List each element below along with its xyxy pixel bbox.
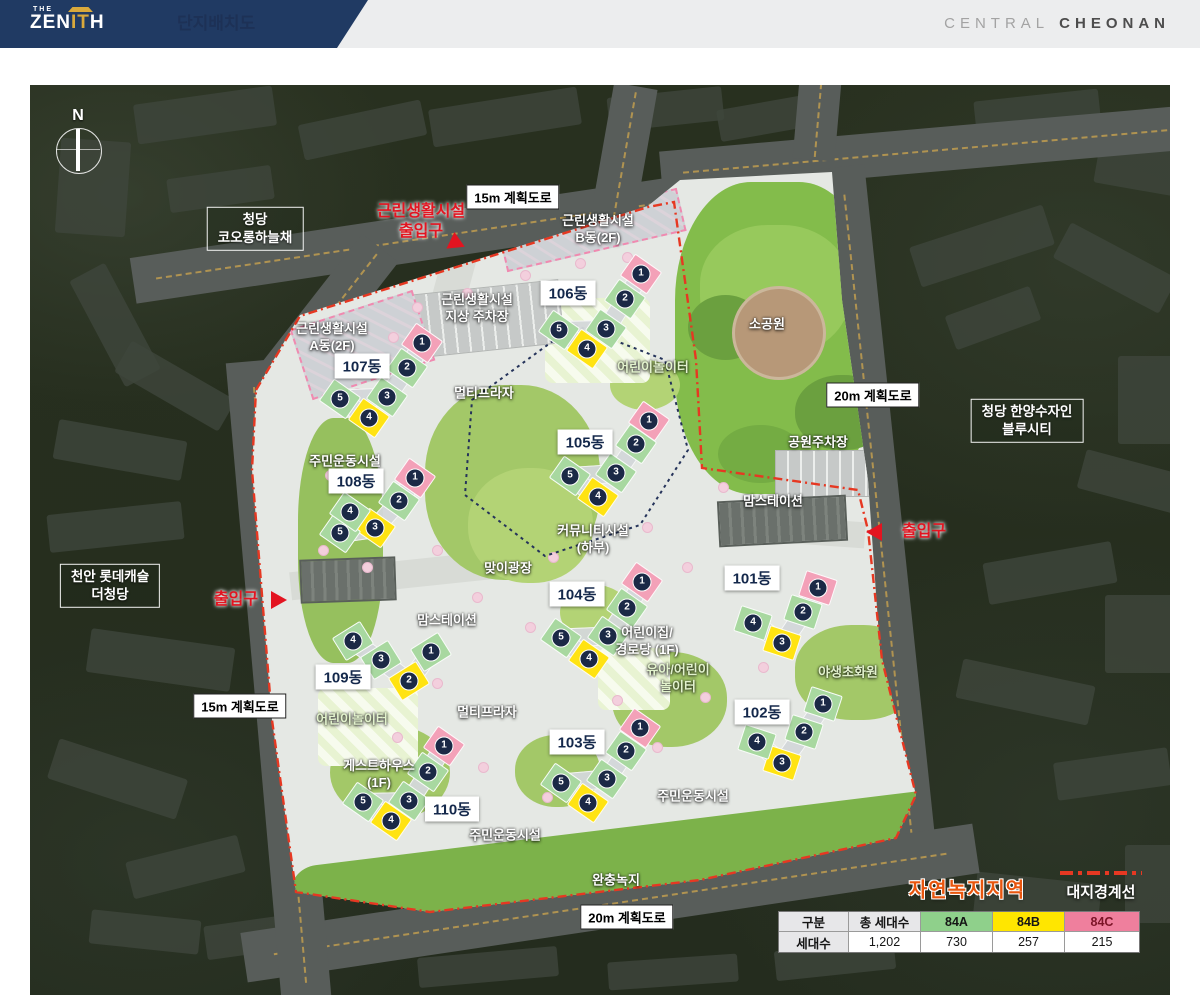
neighbor-label-line: 코오롱하늘채 [218, 229, 293, 247]
logo-word: ZENITH [30, 13, 105, 32]
unit-number-badge: 1 [631, 719, 650, 738]
unit-count-table: 구분총 세대수84A84B84C세대수1,202730257215 [778, 911, 1140, 953]
unit-number-badge: 3 [378, 388, 397, 407]
unit-number-badge: 1 [413, 334, 432, 353]
unit-number-badge: 3 [372, 651, 391, 670]
unit-number-badge: 2 [618, 599, 637, 618]
blossom-tree [718, 482, 729, 493]
unit-number-badge: 4 [580, 650, 599, 669]
logo-zen: ZEN [30, 12, 71, 33]
facility-label: 맞이광장 [484, 561, 532, 578]
table-header-구분: 구분 [779, 912, 849, 932]
blossom-tree [432, 545, 443, 556]
unit-number-badge: 4 [579, 794, 598, 813]
unit-number-badge: 3 [597, 320, 616, 339]
facility-label: 어린이놀이터 [617, 360, 689, 377]
entrance-label-line: 근린생활시설 [377, 202, 465, 222]
facility-label: 멀티프라자 [454, 386, 514, 403]
facility-label-line: 경로당 (1F) [615, 642, 678, 659]
building-label-107동: 107동 [335, 354, 390, 379]
entrance-arrow-icon [271, 591, 287, 609]
unit-number-badge: 1 [633, 573, 652, 592]
neighbor-building [607, 953, 739, 990]
legend-site-boundary: 대지경계선 [1058, 871, 1144, 902]
facility-label: 어린이집/경로당 (1F) [615, 625, 678, 659]
table-header-84A: 84A [921, 912, 993, 932]
neighbor-label-line: 블루시티 [982, 421, 1073, 439]
unit-number-badge: 1 [814, 695, 833, 714]
unit-number-badge: 1 [422, 643, 441, 662]
neighbor-building [1053, 747, 1170, 801]
entrance-label: 출입구 [902, 522, 946, 542]
unit-number-badge: 4 [578, 340, 597, 359]
facility-label-line: 주민운동시설 [657, 789, 729, 806]
facility-label-line: 멀티프라자 [457, 705, 517, 722]
road-label: 15m 계획도로 [466, 185, 559, 210]
blossom-tree [682, 562, 693, 573]
shelter-structure [299, 556, 396, 603]
facility-label-line: 맘스테이션 [743, 494, 803, 511]
unit-number-badge: 3 [773, 754, 792, 773]
compass-needle [76, 129, 80, 171]
unit-number-badge: 2 [398, 359, 417, 378]
neighbor-label-line: 청당 [218, 211, 293, 229]
header-bar: THE ZENITH 단지배치도 CENTRALCHEONAN [0, 0, 1200, 48]
blossom-tree [432, 678, 443, 689]
unit-number-badge: 5 [552, 774, 571, 793]
unit-number-badge: 2 [617, 742, 636, 761]
unit-number-badge: 3 [773, 634, 792, 653]
unit-number-badge: 5 [550, 321, 569, 340]
neighbor-label-line: 청당 한양수자인 [982, 403, 1073, 421]
unit-number-badge: 4 [382, 812, 401, 831]
facility-label: 공원주차장 [788, 435, 848, 452]
unit-number-badge: 4 [748, 733, 767, 752]
unit-number-badge: 5 [552, 629, 571, 648]
road [793, 85, 842, 162]
building-label-108동: 108동 [329, 469, 384, 494]
unit-number-badge: 4 [589, 488, 608, 507]
neighbor-building [298, 99, 428, 160]
unit-number-badge: 2 [627, 435, 646, 454]
building-label-110동: 110동 [425, 797, 479, 822]
table-header-84B: 84B [993, 912, 1065, 932]
facility-label: 소공원 [749, 317, 785, 334]
neighbor-label-line: 천안 롯데캐슬 [71, 568, 149, 586]
facility-label: 커뮤니티시설(하부) [557, 523, 629, 557]
facility-label: 유아/어린이놀이터 [646, 662, 709, 696]
facility-label: 맘스테이션 [417, 613, 477, 630]
facility-label: 맘스테이션 [743, 494, 803, 511]
facility-label-line: 공원주차장 [788, 435, 848, 452]
unit-number-badge: 2 [616, 290, 635, 309]
temple-pillars-icon: IT [71, 12, 90, 33]
table-value-cell: 1,202 [849, 932, 921, 952]
brand-central: CENTRAL [944, 15, 1049, 32]
blossom-tree [412, 302, 423, 313]
entrance-label: 출입구 [214, 590, 258, 610]
facility-label-line: 근린생활시설 [441, 292, 513, 309]
building-label-103동: 103동 [550, 730, 605, 755]
facility-label-line: 멀티프라자 [454, 386, 514, 403]
blossom-tree [388, 332, 399, 343]
blossom-tree [758, 662, 769, 673]
logo-th: H [90, 12, 105, 33]
unit-number-badge: 3 [607, 464, 626, 483]
facility-label-line: 커뮤니티시설 [557, 523, 629, 540]
page-title: 단지배치도 [177, 0, 255, 48]
building-label-109동: 109동 [316, 665, 371, 690]
north-label: N [72, 107, 84, 125]
table-row-label: 세대수 [779, 932, 849, 952]
unit-number-badge: 3 [400, 792, 419, 811]
neighbor-building [1077, 449, 1170, 515]
unit-number-badge: 2 [419, 763, 438, 782]
legend-natural-green-zone: 자연녹지지역 [909, 874, 1025, 903]
table-value-cell: 257 [993, 932, 1065, 952]
neighbor-building [1118, 356, 1170, 444]
unit-number-badge: 2 [390, 492, 409, 511]
table-header-84C: 84C [1065, 912, 1139, 932]
blossom-tree [612, 695, 623, 706]
brand-text: CENTRALCHEONAN [944, 0, 1170, 48]
unit-number-badge: 4 [344, 632, 363, 651]
neighbor-building [46, 501, 184, 553]
neighbor-building [86, 628, 236, 692]
facility-label: 근린생활시설A동(2F) [296, 321, 368, 355]
the-zenith-logo: THE ZENITH [30, 6, 105, 32]
facility-label: 주민운동시설 [657, 789, 729, 806]
blossom-tree [472, 592, 483, 603]
neighbor-building [133, 85, 277, 144]
facility-label-line: 근린생활시설 [562, 213, 634, 230]
facility-label-line: 유아/어린이 [646, 662, 709, 679]
neighbor-building [53, 419, 188, 481]
facility-label-line: 어린이놀이터 [316, 712, 388, 729]
entrance-arrow-icon [866, 523, 882, 541]
building-label-106동: 106동 [541, 281, 596, 306]
boundary-dash-sample [1060, 871, 1142, 875]
blossom-tree [575, 258, 586, 269]
table-value-cell: 215 [1065, 932, 1139, 952]
site-plan-map: N 자연녹지지역 대지경계선 구분총 세대수84A84B84C세대수1,2027… [30, 85, 1170, 995]
facility-label: 근린생활시설B동(2F) [562, 213, 634, 247]
blossom-tree [392, 732, 403, 743]
facility-label-line: 맘스테이션 [417, 613, 477, 630]
facility-label-line: 어린이집/ [615, 625, 678, 642]
boundary-label: 대지경계선 [1058, 881, 1144, 902]
facility-label-line: 야생초화원 [818, 665, 878, 682]
unit-number-badge: 4 [341, 503, 360, 522]
blossom-tree [318, 545, 329, 556]
facility-label-line: 완충녹지 [592, 873, 640, 890]
unit-number-badge: 5 [331, 524, 350, 543]
facility-label-line: (하부) [557, 540, 629, 557]
neighbor-building [47, 738, 188, 820]
unit-number-badge: 1 [632, 265, 651, 284]
unit-number-badge: 1 [640, 412, 659, 431]
unit-number-badge: 5 [561, 467, 580, 486]
neighbor-building [89, 909, 202, 954]
blossom-tree [652, 742, 663, 753]
road-centerline [814, 85, 822, 157]
entrance-label-line: 출입구 [214, 590, 258, 610]
unit-number-badge: 5 [331, 390, 350, 409]
neighbor-building [945, 286, 1042, 351]
blossom-tree [362, 562, 373, 573]
neighbor-complex-label: 청당 한양수자인블루시티 [971, 399, 1084, 443]
unit-number-badge: 2 [400, 672, 419, 691]
table-header-총 세대수: 총 세대수 [849, 912, 921, 932]
facility-label: 멀티프라자 [457, 705, 517, 722]
neighbor-complex-label: 천안 롯데캐슬더청당 [60, 564, 160, 608]
facility-label-line: 어린이놀이터 [617, 360, 689, 377]
facility-label-line: 맞이광장 [484, 561, 532, 578]
neighbor-building [125, 835, 246, 900]
facility-label: 어린이놀이터 [316, 712, 388, 729]
facility-label: 완충녹지 [592, 873, 640, 890]
unit-number-badge: 3 [598, 770, 617, 789]
blossom-tree [478, 762, 489, 773]
unit-number-badge: 1 [435, 737, 454, 756]
facility-label: 야생초화원 [818, 665, 878, 682]
facility-label: 게스트하우스(1F) [343, 758, 415, 792]
neighbor-building [1053, 222, 1170, 314]
neighbor-building [428, 87, 582, 148]
neighbor-label-line: 더청당 [71, 586, 149, 604]
blossom-tree [642, 522, 653, 533]
facility-label-line: A동(2F) [296, 338, 368, 355]
brand-cheonan: CHEONAN [1059, 15, 1170, 32]
road-label: 20m 계획도로 [580, 905, 673, 930]
facility-label-line: B동(2F) [562, 230, 634, 247]
neighbor-building [114, 340, 236, 431]
unit-number-badge: 2 [795, 723, 814, 742]
building-label-102동: 102동 [735, 700, 790, 725]
building-label-104동: 104동 [550, 582, 605, 607]
blossom-tree [542, 792, 553, 803]
unit-number-badge: 4 [744, 614, 763, 633]
neighbor-complex-label: 청당코오롱하늘채 [207, 207, 304, 251]
neighbor-building [955, 658, 1095, 725]
blossom-tree [525, 622, 536, 633]
unit-number-badge: 2 [794, 603, 813, 622]
facility-label-line: 근린생활시설 [296, 321, 368, 338]
building-label-101동: 101동 [725, 566, 780, 591]
parking-lot [775, 450, 872, 497]
unit-number-badge: 1 [406, 469, 425, 488]
table-value-cell: 730 [921, 932, 993, 952]
neighbor-building [1105, 595, 1170, 673]
road-label: 15m 계획도로 [193, 694, 286, 719]
unit-number-badge: 4 [360, 409, 379, 428]
entrance-label-line: 출입구 [902, 522, 946, 542]
page: THE ZENITH 단지배치도 CENTRALCHEONAN N 자연녹지지역… [0, 0, 1200, 1001]
facility-label-line: 지상 주차장 [441, 309, 513, 326]
facility-label-line: 주민운동시설 [469, 828, 541, 845]
unit-number-badge: 5 [354, 793, 373, 812]
neighbor-building [982, 541, 1117, 605]
building-label-105동: 105동 [558, 430, 613, 455]
unit-number-badge: 1 [809, 579, 828, 598]
blossom-tree [520, 270, 531, 281]
facility-label: 주민운동시설 [469, 828, 541, 845]
unit-number-badge: 3 [366, 519, 385, 538]
facility-label-line: 놀이터 [646, 679, 709, 696]
facility-label: 근린생활시설지상 주차장 [441, 292, 513, 326]
facility-label-line: (1F) [343, 775, 415, 792]
road-label: 20m 계획도로 [826, 383, 919, 408]
facility-label-line: 소공원 [749, 317, 785, 334]
facility-label-line: 게스트하우스 [343, 758, 415, 775]
neighbor-building [909, 204, 1055, 287]
